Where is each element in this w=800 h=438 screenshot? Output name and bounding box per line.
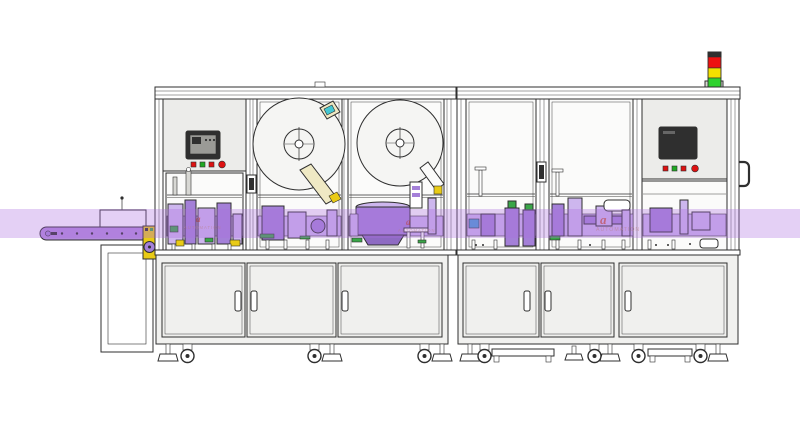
cabinet-door <box>619 263 727 337</box>
beam-bracket <box>315 82 325 87</box>
watermark-logo: a <box>406 217 411 227</box>
base-rail <box>492 349 554 356</box>
tower-light-red <box>708 57 721 68</box>
outfeed-cam <box>700 239 718 248</box>
conveyor-stand <box>101 245 153 352</box>
screen-window-icon <box>192 137 201 144</box>
button-green <box>200 162 205 167</box>
tower-light-green <box>708 78 721 87</box>
feet-left-machine <box>158 344 452 363</box>
button-red <box>191 162 196 167</box>
leveling-foot <box>608 344 612 354</box>
tower-cap <box>708 52 721 57</box>
leveling-foot <box>468 344 472 354</box>
watermark-text: AUTOMATION <box>398 228 436 233</box>
cabinet-door <box>541 263 614 337</box>
highlight-band <box>0 209 800 238</box>
top-beam <box>457 87 740 99</box>
side-door-handle <box>739 162 749 186</box>
leveling-foot <box>716 344 720 354</box>
machine-line-drawing: a AUTOMATION a AUTOMATION a AUTOMATION <box>0 0 800 438</box>
button-green <box>672 166 677 171</box>
door-handle <box>625 291 631 311</box>
button-red <box>681 166 686 171</box>
cabinet-door <box>247 263 336 337</box>
emergency-stop-button <box>219 161 226 168</box>
door-handle <box>235 291 241 311</box>
button-red <box>209 162 214 167</box>
cabinet-door <box>162 263 245 337</box>
door-handle <box>342 291 348 311</box>
cabinet-left-doors <box>162 263 442 337</box>
cabinet-right-doors <box>463 263 727 337</box>
button-red <box>663 166 668 171</box>
sensor-tip-icon <box>120 196 123 199</box>
watermark-text: AUTOMATION <box>596 227 640 233</box>
table-sill <box>155 250 456 255</box>
door-handle <box>251 291 257 311</box>
table-sill <box>457 250 740 255</box>
leveling-foot <box>330 344 334 354</box>
signal-tower <box>705 52 723 87</box>
door-handle <box>524 291 530 311</box>
leveling-foot <box>572 346 576 354</box>
feet-right-machine <box>460 344 728 363</box>
door-handle <box>545 291 551 311</box>
tower-light-yellow <box>708 68 721 78</box>
machine-line-illustration: a AUTOMATION a AUTOMATION a AUTOMATION <box>0 0 800 438</box>
right-machine <box>457 52 749 363</box>
leveling-foot <box>440 344 444 354</box>
watermark-logo: a <box>600 212 607 227</box>
emergency-stop-button <box>692 165 699 172</box>
base-rail <box>648 349 692 356</box>
top-beam <box>155 87 456 99</box>
leveling-foot <box>166 344 170 354</box>
cabinet-door <box>338 263 442 337</box>
watermark-logo: a <box>196 214 201 224</box>
watermark-text: AUTOMATION <box>184 225 222 230</box>
